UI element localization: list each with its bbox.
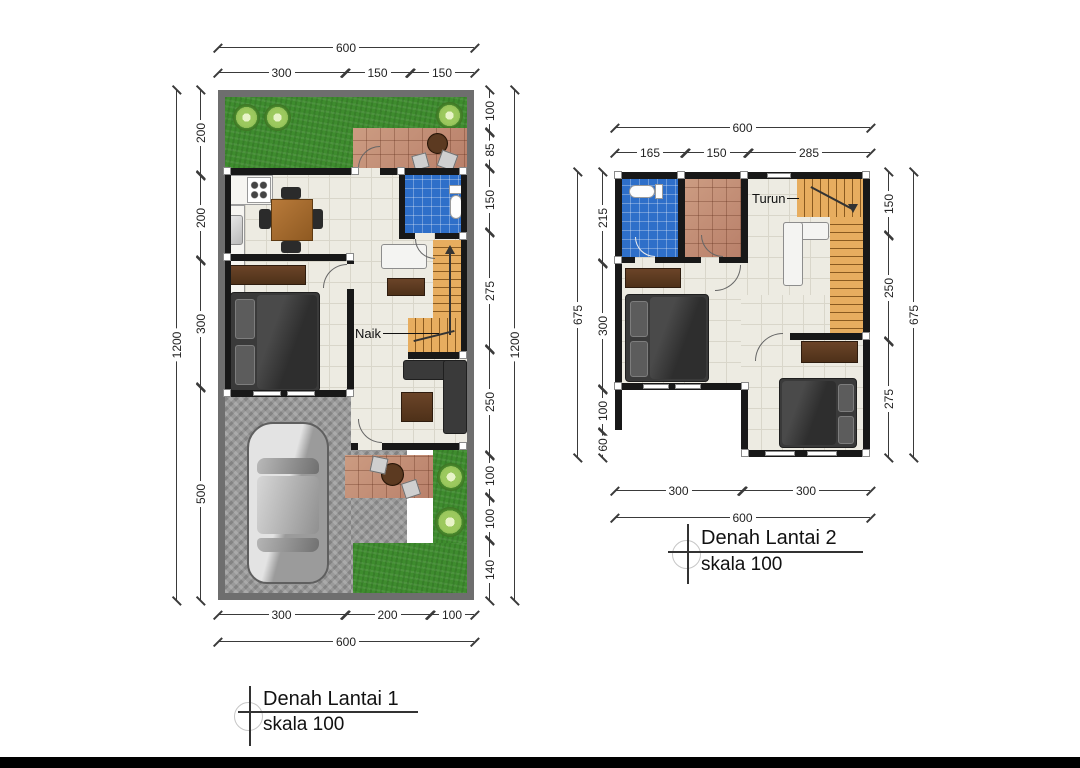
plan1-scale: skala 100	[263, 715, 344, 736]
stair-label-naik: Naik	[355, 327, 381, 340]
dim-p1-right-total: 1200	[514, 90, 515, 600]
dim-p1-right-4: 275	[489, 232, 490, 349]
wall-pier	[223, 167, 231, 175]
wall-pier	[351, 167, 359, 175]
dim-p2-bottom-total: 600	[615, 517, 870, 518]
window-icon	[643, 384, 669, 389]
coffee-table	[387, 278, 425, 296]
plan2-drawing: Turun	[615, 172, 870, 457]
wall-pier	[677, 171, 685, 179]
wall	[225, 254, 353, 261]
dim-p2-top-3: 285	[748, 152, 870, 153]
wall-pier	[346, 389, 354, 397]
label-leader-line	[787, 198, 799, 199]
wall	[741, 450, 870, 457]
dim-p1-right-8: 140	[489, 540, 490, 600]
window-icon	[765, 451, 795, 456]
dim-p2-bottom-1: 300	[615, 490, 742, 491]
window-icon	[767, 173, 791, 178]
dim-p1-top-2: 150	[345, 72, 410, 73]
wall	[622, 257, 635, 263]
wall-pier	[614, 171, 622, 179]
floor-plan-sheet: Naik 600 300 150 150 1200 200 200 300 50…	[0, 0, 1080, 768]
title-underline	[238, 711, 418, 713]
dim-p2-left-4: 60	[602, 432, 603, 457]
dim-p2-right-2: 250	[888, 235, 889, 341]
wall-pier	[741, 449, 749, 457]
stair-label-turun: Turun	[752, 192, 785, 205]
dim-p1-top-3: 150	[410, 72, 474, 73]
wall-pier	[862, 449, 870, 457]
bedroom2-dresser	[625, 268, 681, 288]
plan2-stairs-right-flight	[830, 217, 863, 333]
l-sofa-white	[783, 222, 803, 286]
dim-p1-right-2: 85	[489, 132, 490, 168]
dim-p1-right-5: 250	[489, 349, 490, 455]
dining-chair	[281, 241, 301, 253]
plan1-garden-bottom	[353, 543, 467, 593]
bedroom3-bed	[779, 378, 857, 448]
wall	[461, 168, 467, 359]
dim-p2-left-1: 215	[602, 172, 603, 263]
dining-table	[271, 199, 313, 241]
wall-pier	[397, 167, 405, 175]
plan1-drawing: Naik	[218, 90, 474, 600]
dim-p1-bottom-1: 300	[218, 614, 345, 615]
dim-p2-left-3: 100	[602, 389, 603, 432]
wall-pier	[741, 382, 749, 390]
wall	[347, 289, 354, 397]
window-icon	[675, 384, 701, 389]
wall	[719, 257, 748, 263]
letterbox-bar	[0, 757, 1080, 768]
bush-icon	[435, 507, 465, 537]
dim-p1-bottom-2: 200	[345, 614, 430, 615]
dim-p1-left-2: 200	[200, 175, 201, 260]
wall	[225, 168, 231, 397]
dim-p1-left-1: 200	[200, 90, 201, 175]
dim-p2-right-1: 150	[888, 172, 889, 235]
wall-pier	[862, 332, 870, 340]
wall-pier	[223, 253, 231, 261]
dim-p2-left-2: 300	[602, 263, 603, 389]
wall-pier	[459, 351, 467, 359]
dim-p2-bottom-2: 300	[742, 490, 870, 491]
dim-p1-bottom-3: 100	[430, 614, 474, 615]
wall	[615, 390, 622, 430]
terrace-chair	[370, 456, 389, 475]
wall	[678, 179, 685, 263]
l-sofa-dark	[443, 360, 467, 434]
wall	[655, 257, 701, 263]
dim-p1-right-6: 100	[489, 455, 490, 497]
wall-pier	[614, 382, 622, 390]
dining-chair	[259, 209, 271, 229]
wall-pier	[223, 389, 231, 397]
wall-pier	[459, 232, 467, 240]
title-mark-line	[687, 524, 689, 584]
wall-pier	[862, 171, 870, 179]
dim-p2-top-total: 600	[615, 127, 870, 128]
dining-chair	[281, 187, 301, 199]
plan2-scale: skala 100	[701, 555, 782, 576]
wall-pier	[459, 442, 467, 450]
plan2-title: Denah Lantai 2	[701, 527, 837, 549]
dim-p1-top-total: 600	[218, 47, 474, 48]
plan1-title: Denah Lantai 1	[263, 688, 399, 710]
dim-p1-top-1: 300	[218, 72, 345, 73]
wall-pier	[740, 171, 748, 179]
dim-p2-right-total: 675	[913, 172, 914, 457]
wall	[741, 179, 748, 263]
bedroom1-bed	[230, 292, 320, 392]
bush-icon	[437, 463, 465, 491]
dim-p1-right-7: 100	[489, 497, 490, 540]
title-mark-line	[249, 686, 251, 746]
wall	[863, 172, 870, 457]
wall	[399, 175, 405, 239]
wall	[790, 333, 863, 340]
car	[247, 422, 329, 584]
bedroom1-dresser	[230, 265, 306, 285]
dim-p1-left-total: 1200	[176, 90, 177, 600]
window-icon	[253, 391, 281, 396]
wall-pier	[346, 253, 354, 261]
wall	[382, 443, 467, 450]
bedroom3-wardrobe	[801, 341, 858, 363]
dim-p2-top-1: 165	[615, 152, 685, 153]
stairs-up-arrow	[449, 249, 451, 335]
dim-p2-top-2: 150	[685, 152, 748, 153]
window-icon	[807, 451, 837, 456]
dim-p1-right-1: 100	[489, 90, 490, 132]
dim-p1-bottom-total: 600	[218, 641, 474, 642]
wall	[399, 233, 415, 239]
wall-pier	[614, 256, 622, 264]
wall	[741, 383, 748, 457]
dim-p2-left-total: 675	[577, 172, 578, 457]
stairs-down-arrowhead	[848, 204, 858, 213]
stove-icon	[247, 177, 271, 203]
toilet-icon	[629, 185, 655, 198]
wall	[380, 168, 467, 175]
dim-p1-right-3: 150	[489, 168, 490, 232]
toilet-icon	[655, 184, 663, 199]
dim-p2-right-3: 275	[888, 341, 889, 457]
stairs-up-arrowhead	[445, 245, 455, 254]
wall-pier	[459, 167, 467, 175]
bedroom2-bed	[625, 294, 709, 382]
wall	[351, 443, 358, 450]
bush-icon	[436, 102, 463, 129]
bush-icon	[233, 104, 260, 131]
title-underline	[668, 551, 863, 553]
dim-p1-left-3: 300	[200, 260, 201, 387]
label-leader-line	[383, 333, 439, 334]
window-icon	[287, 391, 315, 396]
coffee-table	[401, 392, 433, 422]
bush-icon	[264, 104, 291, 131]
dim-p1-left-4: 500	[200, 387, 201, 600]
wall	[615, 172, 622, 390]
wall	[225, 168, 358, 175]
